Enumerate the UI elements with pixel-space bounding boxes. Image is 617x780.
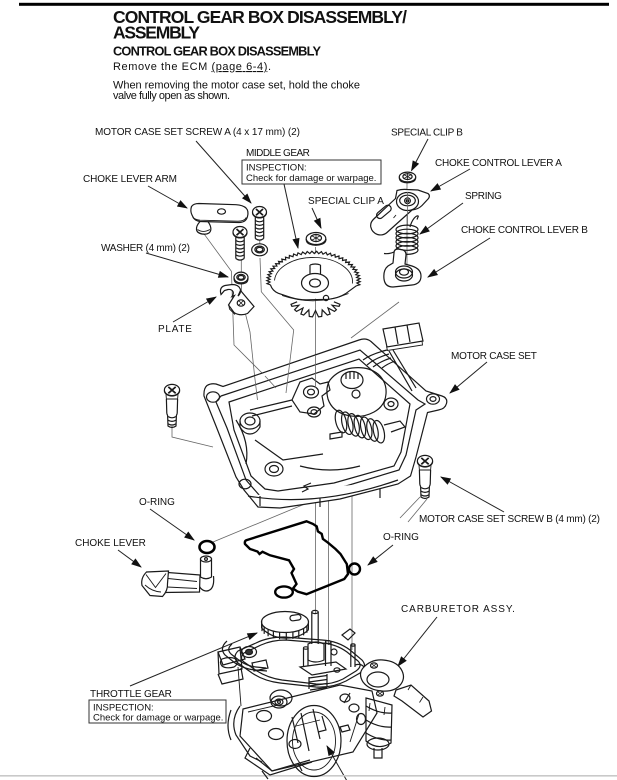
svg-text:SPECIAL CLIP B: SPECIAL CLIP B xyxy=(391,128,463,139)
svg-text:CONTROL GEAR BOX DISASSEMBLY: CONTROL GEAR BOX DISASSEMBLY xyxy=(113,44,321,59)
svg-text:O-RING: O-RING xyxy=(139,497,175,508)
svg-text:MIDDLE GEAR: MIDDLE GEAR xyxy=(246,148,310,159)
svg-text:Check for damage or warpage.: Check for damage or warpage. xyxy=(93,713,223,724)
svg-text:THROTTLE GEAR: THROTTLE GEAR xyxy=(90,689,172,700)
svg-text:MOTOR CASE SET: MOTOR CASE SET xyxy=(451,351,537,362)
svg-text:CHOKE LEVER ARM: CHOKE LEVER ARM xyxy=(83,174,177,185)
svg-text:CHOKE CONTROL LEVER A: CHOKE CONTROL LEVER A xyxy=(435,158,562,169)
svg-text:SPECIAL CLIP A: SPECIAL CLIP A xyxy=(308,196,384,207)
svg-text:CARBURETOR ASSY.: CARBURETOR ASSY. xyxy=(401,604,515,615)
svg-text:Remove the ECM (page 6-4).: Remove the ECM (page 6-4). xyxy=(113,61,271,73)
svg-text:INSPECTION:: INSPECTION: xyxy=(246,163,307,174)
svg-text:MOTOR CASE SET SCREW A (4 x 17: MOTOR CASE SET SCREW A (4 x 17 mm) (2) xyxy=(95,127,300,138)
svg-text:O-RING: O-RING xyxy=(383,532,419,543)
svg-text:valve fully open as shown.: valve fully open as shown. xyxy=(113,90,230,102)
svg-text:MOTOR CASE SET SCREW B (4 mm): MOTOR CASE SET SCREW B (4 mm) (2) xyxy=(419,514,600,525)
svg-text:CHOKE CONTROL LEVER B: CHOKE CONTROL LEVER B xyxy=(461,225,588,236)
svg-text:PLATE: PLATE xyxy=(158,324,192,335)
svg-text:ASSEMBLY: ASSEMBLY xyxy=(113,23,200,43)
svg-text:WASHER (4 mm) (2): WASHER (4 mm) (2) xyxy=(101,243,190,254)
svg-text:CHOKE LEVER: CHOKE LEVER xyxy=(75,538,146,549)
svg-text:SPRING: SPRING xyxy=(465,191,502,202)
svg-text:Check for damage or warpage.: Check for damage or warpage. xyxy=(246,173,376,184)
